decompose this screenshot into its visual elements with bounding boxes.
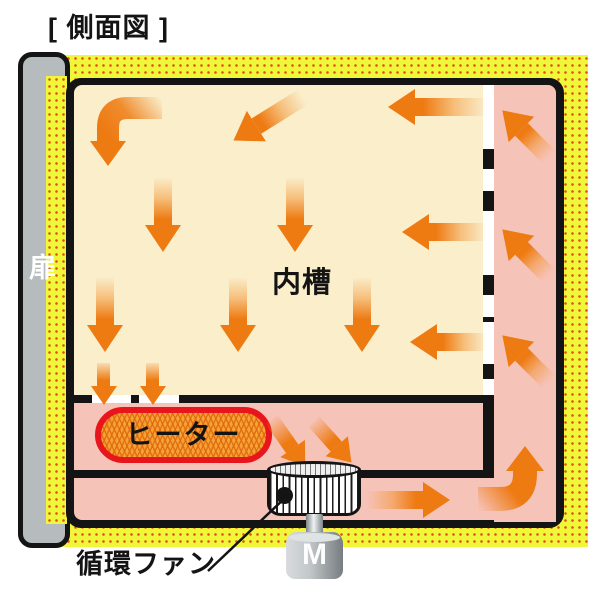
airflow-arrow-left bbox=[388, 89, 486, 125]
motor-label: M bbox=[286, 538, 343, 572]
heater-label: ヒーター bbox=[126, 422, 242, 449]
airflow-arrow-down bbox=[344, 277, 380, 352]
circulation-fan-label: 循環ファン bbox=[76, 551, 216, 578]
door-label: 扉 bbox=[29, 255, 56, 282]
airflow-arrow-down bbox=[145, 177, 181, 252]
airflow-arrow-down bbox=[87, 277, 123, 352]
heater: ヒーター bbox=[95, 407, 272, 463]
diagram-canvas: ヒーター M bbox=[0, 0, 600, 600]
airflow-arrow-left bbox=[402, 214, 486, 250]
airflow-arrow-down-small bbox=[140, 363, 166, 405]
door-insulation-strip bbox=[46, 76, 67, 524]
airflow-arrow-left bbox=[410, 324, 486, 360]
fan-hub-dot bbox=[276, 487, 293, 504]
fan-drum-top bbox=[267, 461, 361, 478]
airflow-arrow-down bbox=[277, 177, 313, 252]
airflow-arrow-right bbox=[366, 482, 450, 518]
page-title: [ 側面図 ] bbox=[48, 15, 169, 42]
airflow-arrow-down bbox=[220, 277, 256, 352]
airflow-arrow-down-small bbox=[91, 363, 117, 405]
inner-chamber-label: 内槽 bbox=[272, 269, 332, 298]
